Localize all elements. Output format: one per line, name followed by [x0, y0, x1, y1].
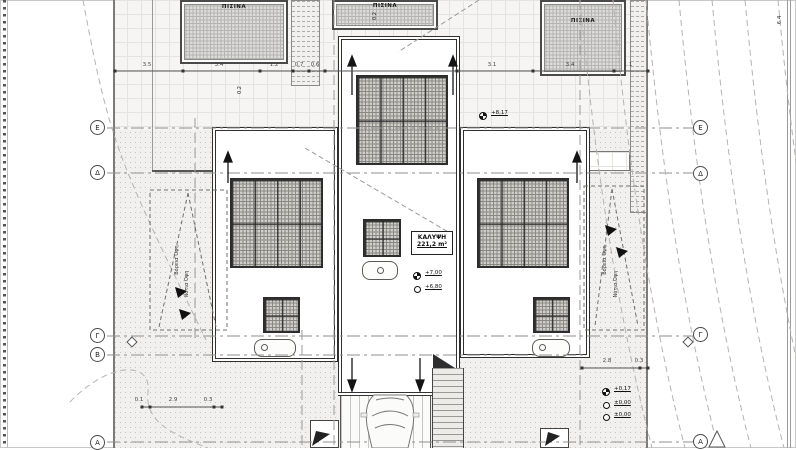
dim-pool-center-gap: 0.2 — [371, 6, 379, 26]
elevation-entrance: +0,17 — [614, 386, 631, 392]
skylight-right-wing-small — [533, 297, 570, 333]
axis-marker-g-left: Γ — [90, 328, 105, 343]
dim-bottom-left-3: 0.3 — [198, 397, 218, 403]
elevation-pool-deck: +8,17 — [491, 110, 508, 116]
north-triangle-icon — [709, 431, 725, 447]
dim-top-1: 3.5 — [137, 62, 157, 68]
axis-marker-d-right: Δ — [693, 166, 708, 181]
staircase — [432, 368, 464, 448]
level-circle-icon — [603, 414, 610, 421]
view-cone-left-label-south: Νότια Όψη — [183, 254, 191, 314]
elevation-ground-b: ±0,00 — [614, 412, 631, 418]
view-cone-right-label-south: Νότια Όψη — [612, 254, 620, 314]
benchmark-icon — [602, 388, 610, 396]
coverage-title: ΚΑΛΥΨΗ — [412, 234, 452, 241]
axis-marker-g-right: Γ — [693, 327, 708, 342]
coverage-value: 221,2 m² — [412, 241, 452, 249]
deck-edge-line-vertical — [152, 0, 153, 172]
terrace-platform — [583, 151, 630, 171]
benchmark-icon — [413, 272, 421, 280]
pool-center: ΠΙΣΙΝΑ — [332, 0, 438, 30]
pool-center-label: ΠΙΣΙΝΑ — [334, 3, 436, 9]
skylight-left-wing-small — [263, 297, 300, 333]
dim-top-7: 3.4 — [560, 62, 580, 68]
section-diamond-right — [682, 336, 693, 347]
axis-marker-e-right: Ε — [693, 120, 708, 135]
dim-top-6: 3.1 — [482, 62, 502, 68]
dim-bottom-left-1: 0.1 — [129, 397, 149, 403]
dim-top-2: 3.4 — [209, 62, 229, 68]
benchmark-icon — [479, 112, 487, 120]
view-cone-right-label-north: Βόρεια Όψη — [601, 230, 609, 290]
level-circle-icon — [603, 402, 610, 409]
elevation-roof-high: +7,00 — [425, 270, 442, 276]
level-circle-icon — [414, 286, 421, 293]
dim-bottom-left-2: 2.9 — [163, 397, 183, 403]
elevation-roof-low: +6,80 — [425, 284, 442, 290]
skylight-core-small — [363, 219, 401, 257]
pool-left-label: ΠΙΣΙΝΑ — [182, 4, 286, 10]
dim-pool-left-gap: 0.2 — [236, 80, 244, 100]
drain-icon — [261, 344, 268, 351]
drain-icon — [539, 344, 546, 351]
drain-icon — [377, 267, 384, 274]
axis-marker-a-right: Α — [693, 434, 708, 449]
deck-edge-line-horizontal — [152, 170, 212, 172]
garage-ramp — [340, 396, 431, 448]
pool-right-label: ΠΙΣΙΝΑ — [542, 18, 624, 24]
dim-right-lower-2: 0.3 — [629, 358, 649, 364]
roof-tub-left — [254, 339, 296, 357]
dim-top-3: 1.2 — [264, 62, 284, 68]
dim-right-lower-1: 2.8 — [597, 358, 617, 364]
dim-right-edge: 6.4 — [776, 10, 784, 30]
plot-boundary-left — [113, 0, 115, 448]
view-cone-left-label-north: Βόρεια Όψη — [173, 230, 181, 290]
planting-strip-left — [291, 0, 320, 86]
planting-strip-right — [630, 0, 647, 213]
skylight-core-large — [356, 75, 448, 165]
roof-plan-drawing: { "labels": { "pool": "ΠΙΣΙΝΑ", "coverag… — [0, 0, 796, 448]
sheet-edge-ruler — [0, 0, 8, 448]
skylight-left-wing-large — [230, 178, 323, 268]
neighbor-boundary-line — [787, 0, 791, 448]
roof-tub-right — [532, 339, 570, 357]
skylight-right-wing-large — [477, 178, 569, 268]
garage-lintel-wall — [338, 392, 431, 396]
axis-marker-e-left: Ε — [90, 120, 105, 135]
axis-marker-b-left: Β — [90, 347, 105, 362]
entry-porch-right — [540, 428, 569, 448]
axis-marker-d-left: Δ — [90, 165, 105, 180]
pool-left: ΠΙΣΙΝΑ — [180, 0, 288, 64]
roof-tub-center — [362, 261, 398, 280]
pool-right: ΠΙΣΙΝΑ — [540, 0, 626, 76]
dim-top-5: 0.6 — [305, 62, 325, 68]
elevation-ground-a: ±0,00 — [614, 400, 631, 406]
dim-top-8: 1.1 — [618, 62, 638, 68]
coverage-label-box: ΚΑΛΥΨΗ 221,2 m² — [411, 231, 453, 255]
entry-porch-left — [310, 420, 339, 448]
